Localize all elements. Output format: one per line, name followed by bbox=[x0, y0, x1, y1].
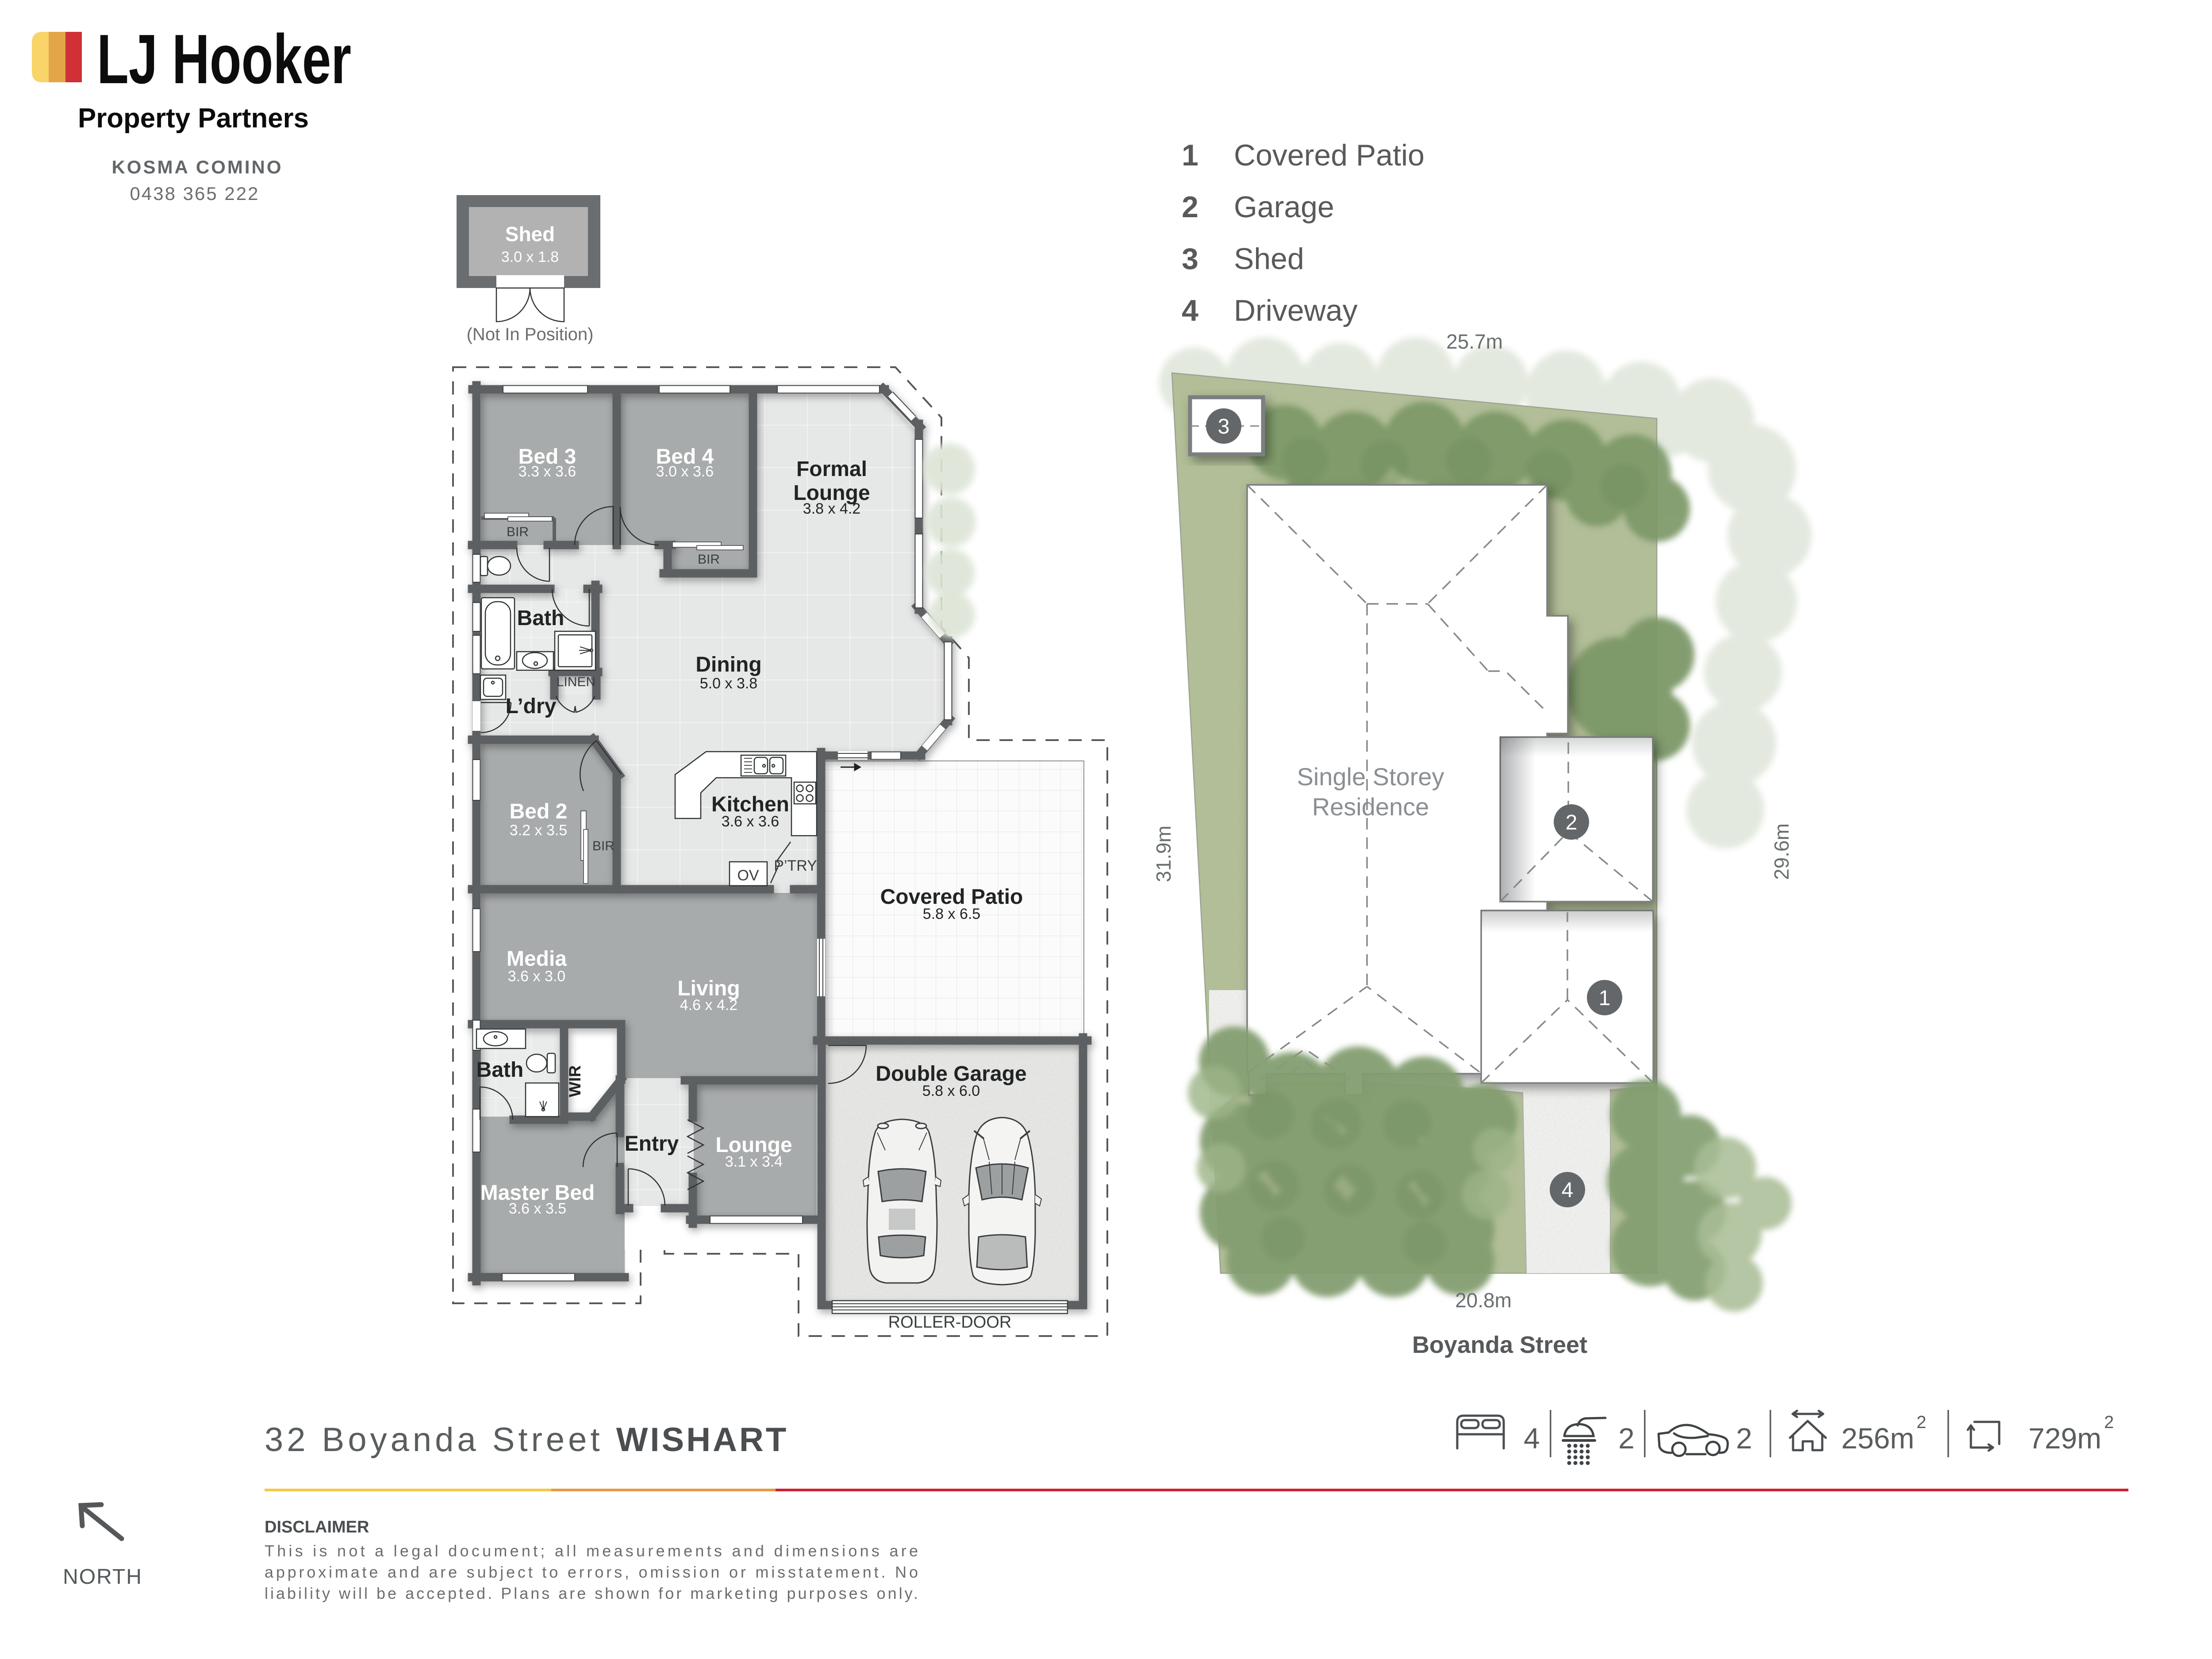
svg-text:4: 4 bbox=[1562, 1179, 1574, 1202]
svg-text:L’dry: L’dry bbox=[506, 695, 557, 718]
svg-text:3.0 x 1.8: 3.0 x 1.8 bbox=[501, 249, 559, 265]
svg-text:31.9m: 31.9m bbox=[1152, 826, 1175, 882]
svg-text:0438 365 222: 0438 365 222 bbox=[130, 183, 260, 204]
svg-text:BIR: BIR bbox=[592, 839, 614, 853]
svg-text:P’TRY: P’TRY bbox=[774, 857, 817, 874]
svg-text:2: 2 bbox=[1916, 1413, 1926, 1432]
svg-text:Bath: Bath bbox=[517, 607, 565, 630]
svg-text:OV: OV bbox=[737, 867, 759, 884]
svg-text:Residence: Residence bbox=[1312, 793, 1429, 821]
svg-text:Bed 2: Bed 2 bbox=[510, 800, 568, 823]
svg-text:Driveway: Driveway bbox=[1234, 294, 1358, 327]
svg-text:4: 4 bbox=[1524, 1422, 1540, 1455]
svg-text:2: 2 bbox=[1618, 1422, 1635, 1455]
svg-text:25.7m: 25.7m bbox=[1446, 330, 1503, 353]
svg-text:(Not In Position): (Not In Position) bbox=[467, 325, 594, 344]
svg-text:Dining: Dining bbox=[695, 653, 761, 676]
svg-text:5.8 x 6.0: 5.8 x 6.0 bbox=[922, 1083, 980, 1099]
svg-text:ROLLER-DOOR: ROLLER-DOOR bbox=[888, 1313, 1012, 1332]
svg-text:3: 3 bbox=[1182, 242, 1198, 276]
svg-text:20.8m: 20.8m bbox=[1455, 1289, 1512, 1312]
svg-text:3.1 x 3.4: 3.1 x 3.4 bbox=[725, 1153, 783, 1170]
svg-text:LJ Hooker: LJ Hooker bbox=[97, 20, 351, 98]
svg-text:Boyanda Street: Boyanda Street bbox=[1412, 1332, 1587, 1358]
svg-text:LINEN: LINEN bbox=[557, 675, 595, 689]
svg-text:729m: 729m bbox=[2028, 1422, 2101, 1455]
svg-text:KOSMA COMINO: KOSMA COMINO bbox=[111, 157, 283, 177]
svg-text:3: 3 bbox=[1218, 415, 1230, 438]
svg-text:3.6 x 3.6: 3.6 x 3.6 bbox=[722, 813, 779, 830]
svg-text:1: 1 bbox=[1599, 987, 1611, 1010]
svg-text:32 Boyanda Street WISHART: 32 Boyanda Street WISHART bbox=[265, 1421, 788, 1459]
svg-text:3.6 x 3.5: 3.6 x 3.5 bbox=[509, 1200, 566, 1217]
svg-text:3.2 x 3.5: 3.2 x 3.5 bbox=[510, 822, 567, 839]
svg-text:BIR: BIR bbox=[698, 552, 720, 567]
svg-text:This is not a legal document;: This is not a legal document; all measur… bbox=[265, 1542, 918, 1560]
svg-text:Entry: Entry bbox=[625, 1132, 679, 1156]
svg-text:Covered Patio: Covered Patio bbox=[1234, 138, 1425, 172]
svg-text:Media: Media bbox=[507, 947, 567, 971]
svg-text:3.0 x 3.6: 3.0 x 3.6 bbox=[656, 463, 714, 480]
svg-text:3.3 x 3.6: 3.3 x 3.6 bbox=[518, 463, 576, 480]
svg-text:2: 2 bbox=[1566, 811, 1578, 834]
svg-text:4.6 x 4.2: 4.6 x 4.2 bbox=[680, 997, 737, 1014]
svg-text:Shed: Shed bbox=[1234, 242, 1304, 276]
svg-text:2: 2 bbox=[2104, 1413, 2114, 1432]
svg-text:3.6 x 3.0: 3.6 x 3.0 bbox=[508, 968, 565, 985]
svg-text:Garage: Garage bbox=[1234, 190, 1334, 224]
svg-text:Property Partners: Property Partners bbox=[78, 103, 309, 134]
svg-text:Shed: Shed bbox=[505, 223, 555, 246]
svg-text:29.6m: 29.6m bbox=[1770, 823, 1793, 880]
svg-text:256m: 256m bbox=[1841, 1422, 1914, 1455]
svg-text:2: 2 bbox=[1182, 190, 1198, 224]
svg-text:Single Storey: Single Storey bbox=[1297, 763, 1444, 791]
svg-text:Bath: Bath bbox=[476, 1058, 524, 1082]
svg-text:4: 4 bbox=[1182, 294, 1198, 327]
svg-text:Formal: Formal bbox=[796, 457, 867, 481]
svg-text:approximate and are subject to: approximate and are subject to errors, o… bbox=[265, 1563, 918, 1581]
svg-text:5.8 x 6.5: 5.8 x 6.5 bbox=[923, 906, 980, 922]
svg-text:2: 2 bbox=[1736, 1422, 1752, 1455]
svg-text:3.8 x 4.2: 3.8 x 4.2 bbox=[803, 500, 860, 517]
svg-text:1: 1 bbox=[1182, 138, 1198, 172]
svg-text:DISCLAIMER: DISCLAIMER bbox=[265, 1518, 369, 1536]
svg-text:BIR: BIR bbox=[507, 525, 529, 539]
svg-text:WIR: WIR bbox=[566, 1065, 584, 1097]
svg-text:5.0 x 3.8: 5.0 x 3.8 bbox=[700, 675, 757, 692]
svg-text:NORTH: NORTH bbox=[63, 1565, 142, 1589]
